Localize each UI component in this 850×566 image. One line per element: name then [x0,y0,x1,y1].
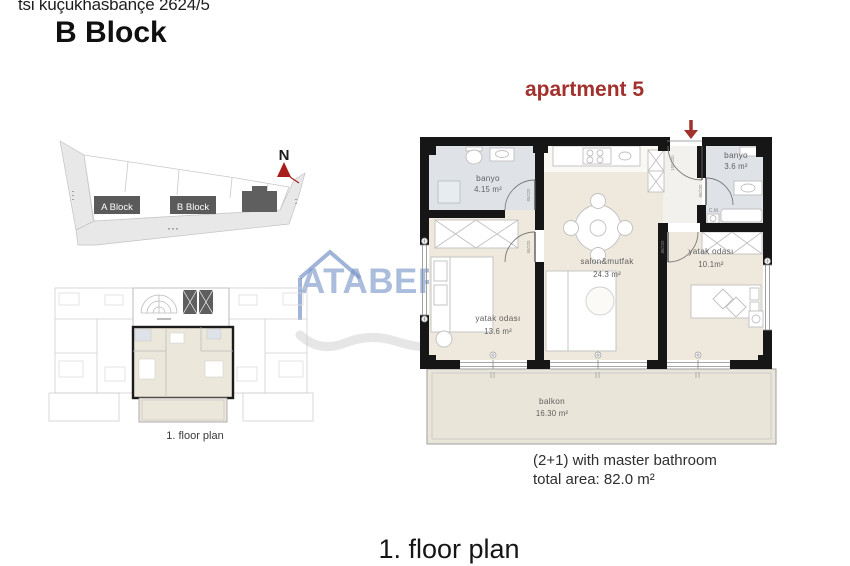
banyo1-name: banyo [476,174,500,183]
core-mark [157,318,171,320]
balcony: balkon 16.30 m² [427,369,776,444]
banyo2-door-size: 80/220 [698,184,703,197]
summary-type: (2+1) with master bathroom [533,451,717,470]
banyo2-area: 3.6 m² [724,162,747,171]
banyo1-area: 4.15 m² [474,185,502,194]
site-block-a-label: A Block [101,202,133,213]
small-plan-caption: 1. floor plan [166,430,223,442]
small-plan-highlighted-unit [133,327,233,422]
bedroom2-door-size: 80/220 [660,240,665,253]
stairs [141,295,177,313]
banyo1-door-size: 80/220 [526,188,531,201]
site-block-b: B Block [170,196,216,214]
elevators [183,290,213,314]
site-block-a: A Block [94,196,140,214]
bedroom1-door-size: 90/220 [526,240,531,253]
block-title: B Block [55,16,167,50]
bedroom1-area: 13.6 m² [484,327,512,336]
apartment-title: apartment 5 [525,78,644,102]
bedroom2-name: yatak odası [688,247,733,256]
balcony-area: 16.30 m² [536,409,569,418]
site-block-b-label: B Block [177,202,209,213]
summary-area: total area: 82.0 m² [533,470,717,489]
north-label: N [279,147,290,164]
bedroom2-area: 10.1m² [698,260,724,269]
washer-label: C.M. [709,208,720,214]
salon-area: 24.3 m² [593,270,621,279]
plan-sheet: tsi küçükhasbançe 2624/5 B Block ATABERK… [0,0,850,566]
entrance-arrow-icon [684,120,698,139]
footer-title: 1. floor plan [378,534,519,565]
site-plan: A Block B Block N [58,133,313,268]
balcony-name: balkon [539,397,565,406]
project-line: tsi küçükhasbançe 2624/5 [18,0,210,15]
apartment-summary: (2+1) with master bathroom total area: 8… [533,451,717,489]
small-floor-plan: 1. floor plan [45,281,317,446]
entry-door-size: 100/220 [670,155,675,171]
banyo2-name: banyo [724,151,748,160]
north-arrow-icon: N [277,147,299,183]
salon-name: salon&mutfak [580,257,634,266]
small-plan-core [133,288,229,327]
apartment-floor-plan: balkon 16.30 m² [418,111,784,451]
bedroom1-name: yatak odası [475,314,520,323]
